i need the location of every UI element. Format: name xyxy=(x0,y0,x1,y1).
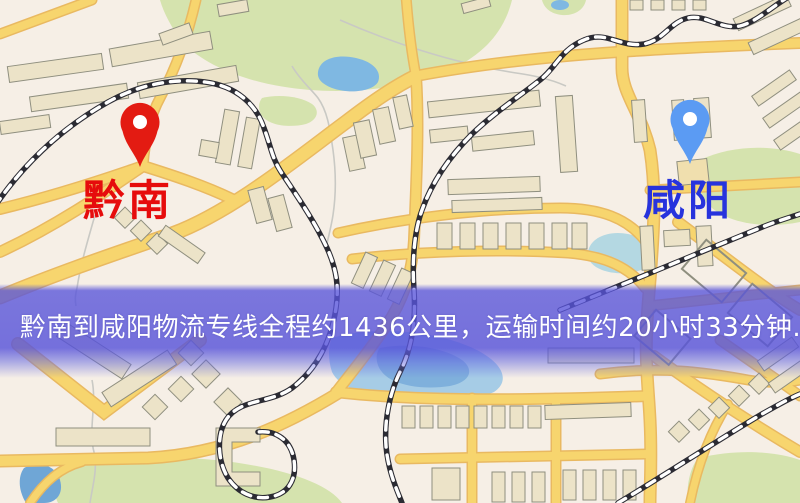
map-screenshot: 黔南 咸阳 黔南到咸阳物流专线全程约1436公里，运输时间约20小时33分钟. xyxy=(0,0,800,503)
origin-pin-icon[interactable] xyxy=(118,101,162,169)
destination-label: 咸阳 xyxy=(643,179,733,223)
map-canvas[interactable] xyxy=(0,0,800,503)
route-banner: 黔南到咸阳物流专线全程约1436公里，运输时间约20小时33分钟. xyxy=(0,284,800,378)
destination-pin-icon[interactable] xyxy=(668,98,712,166)
origin-label: 黔南 xyxy=(83,179,173,223)
route-banner-text: 黔南到咸阳物流专线全程约1436公里，运输时间约20小时33分钟. xyxy=(20,313,800,343)
